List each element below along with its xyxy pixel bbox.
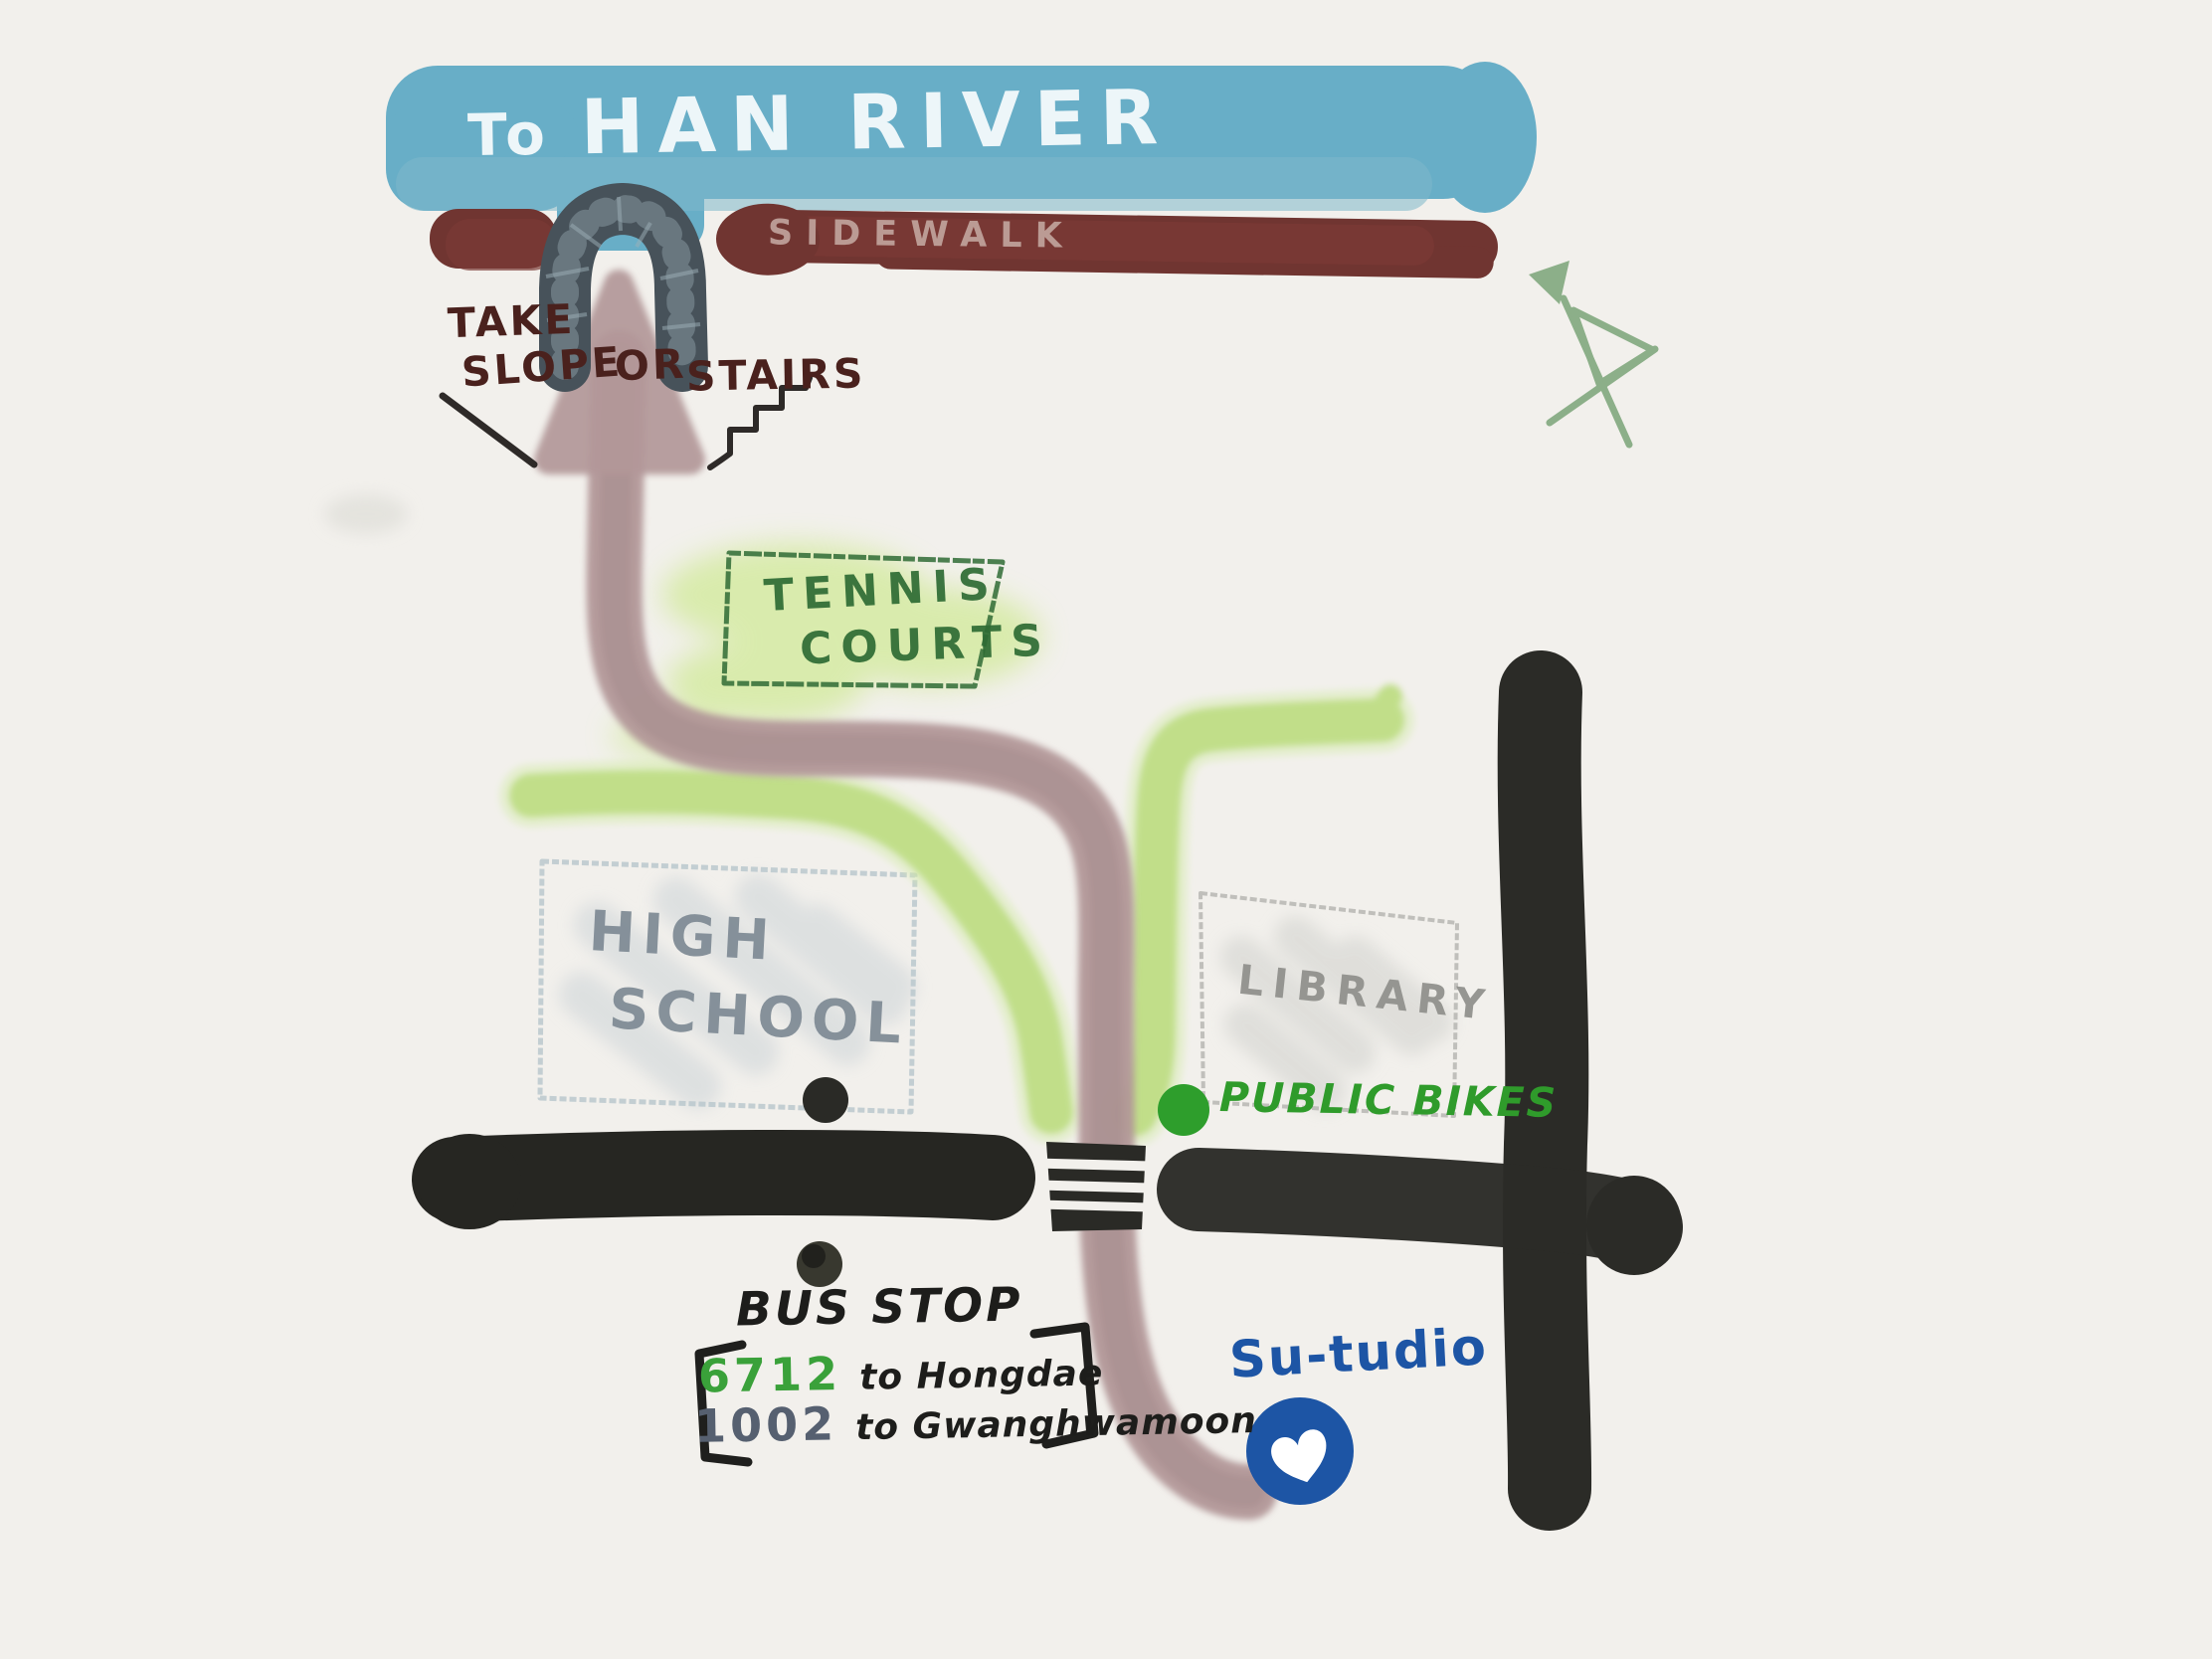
main-road-right	[1198, 1190, 1641, 1227]
north-arrow-icon	[1529, 261, 1655, 445]
slope-line	[443, 396, 534, 464]
river-title-name: HAN RIVER	[580, 80, 1173, 165]
bus-route-destination: to Gwanghwamoon	[855, 1403, 1257, 1446]
bus-stop-label: BUS STOP	[736, 1281, 1023, 1333]
school-gate-dot	[803, 1077, 848, 1123]
hand-drawn-map: To HAN RIVER SIDEWALK TAKE SLOPE OR STAI…	[0, 0, 2212, 1659]
high-school-label-line2: SCHOOL	[608, 982, 910, 1053]
access-note-take: TAKE	[447, 299, 576, 344]
tennis-courts-label-line1: TENNIS	[763, 563, 1000, 619]
bus-route-6712: 6712 to Hongdae	[698, 1346, 1104, 1398]
bus-route-number: 6712	[698, 1351, 842, 1399]
access-note-stairs: STAIRS	[686, 353, 866, 397]
crosswalk	[1033, 1142, 1156, 1231]
access-note-or: OR	[614, 344, 687, 388]
river-title-prefix: To	[467, 105, 552, 164]
smudge	[324, 494, 408, 534]
bus-route-1002: 1002 to Gwanghwamoon	[694, 1393, 1258, 1449]
main-road-left	[455, 1173, 993, 1180]
tennis-courts-label-line2: COURTS	[799, 620, 1051, 672]
bus-route-destination: to Hongdae	[859, 1356, 1104, 1395]
sidewalk-label: SIDEWALK	[768, 216, 1075, 254]
studio-label: Su-tudio	[1228, 1322, 1489, 1386]
bike-station-dot	[1158, 1084, 1209, 1136]
studio-marker	[1246, 1397, 1354, 1505]
bus-route-number: 1002	[694, 1400, 838, 1449]
river-title: To HAN RIVER	[466, 80, 1172, 167]
public-bikes-label: PUBLIC BIKES	[1219, 1077, 1559, 1124]
access-note-slope: SLOPE	[461, 341, 625, 393]
high-school-label-line1: HIGH	[588, 904, 778, 970]
